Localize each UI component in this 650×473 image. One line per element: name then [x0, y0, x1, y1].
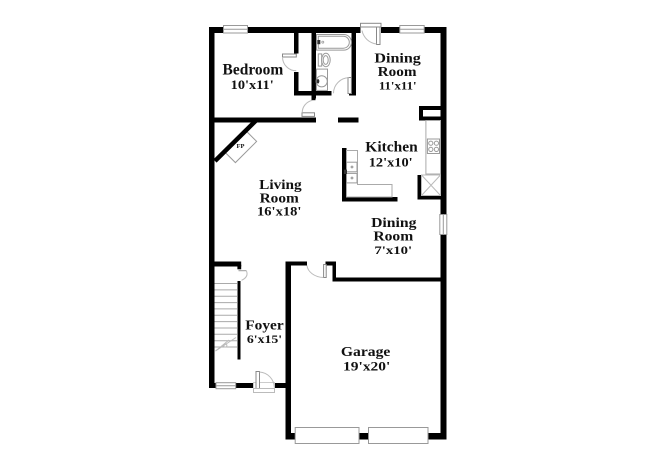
svg-text:12'x10': 12'x10' — [369, 156, 413, 170]
svg-text:7'x10': 7'x10' — [374, 243, 412, 257]
svg-text:FP: FP — [237, 143, 245, 150]
svg-text:Bedroom: Bedroom — [223, 62, 284, 79]
svg-text:6'x15': 6'x15' — [247, 332, 282, 346]
svg-text:Foyer: Foyer — [245, 318, 283, 333]
svg-text:10'x11': 10'x11' — [231, 78, 274, 92]
svg-text:16'x18': 16'x18' — [257, 205, 301, 219]
svg-text:Room: Room — [378, 64, 418, 79]
svg-text:Garage: Garage — [341, 344, 391, 359]
svg-text:Room: Room — [373, 229, 414, 244]
svg-text:19'x20': 19'x20' — [343, 360, 390, 374]
svg-text:Kitchen: Kitchen — [365, 140, 417, 156]
svg-text:11'x11': 11'x11' — [379, 78, 417, 92]
